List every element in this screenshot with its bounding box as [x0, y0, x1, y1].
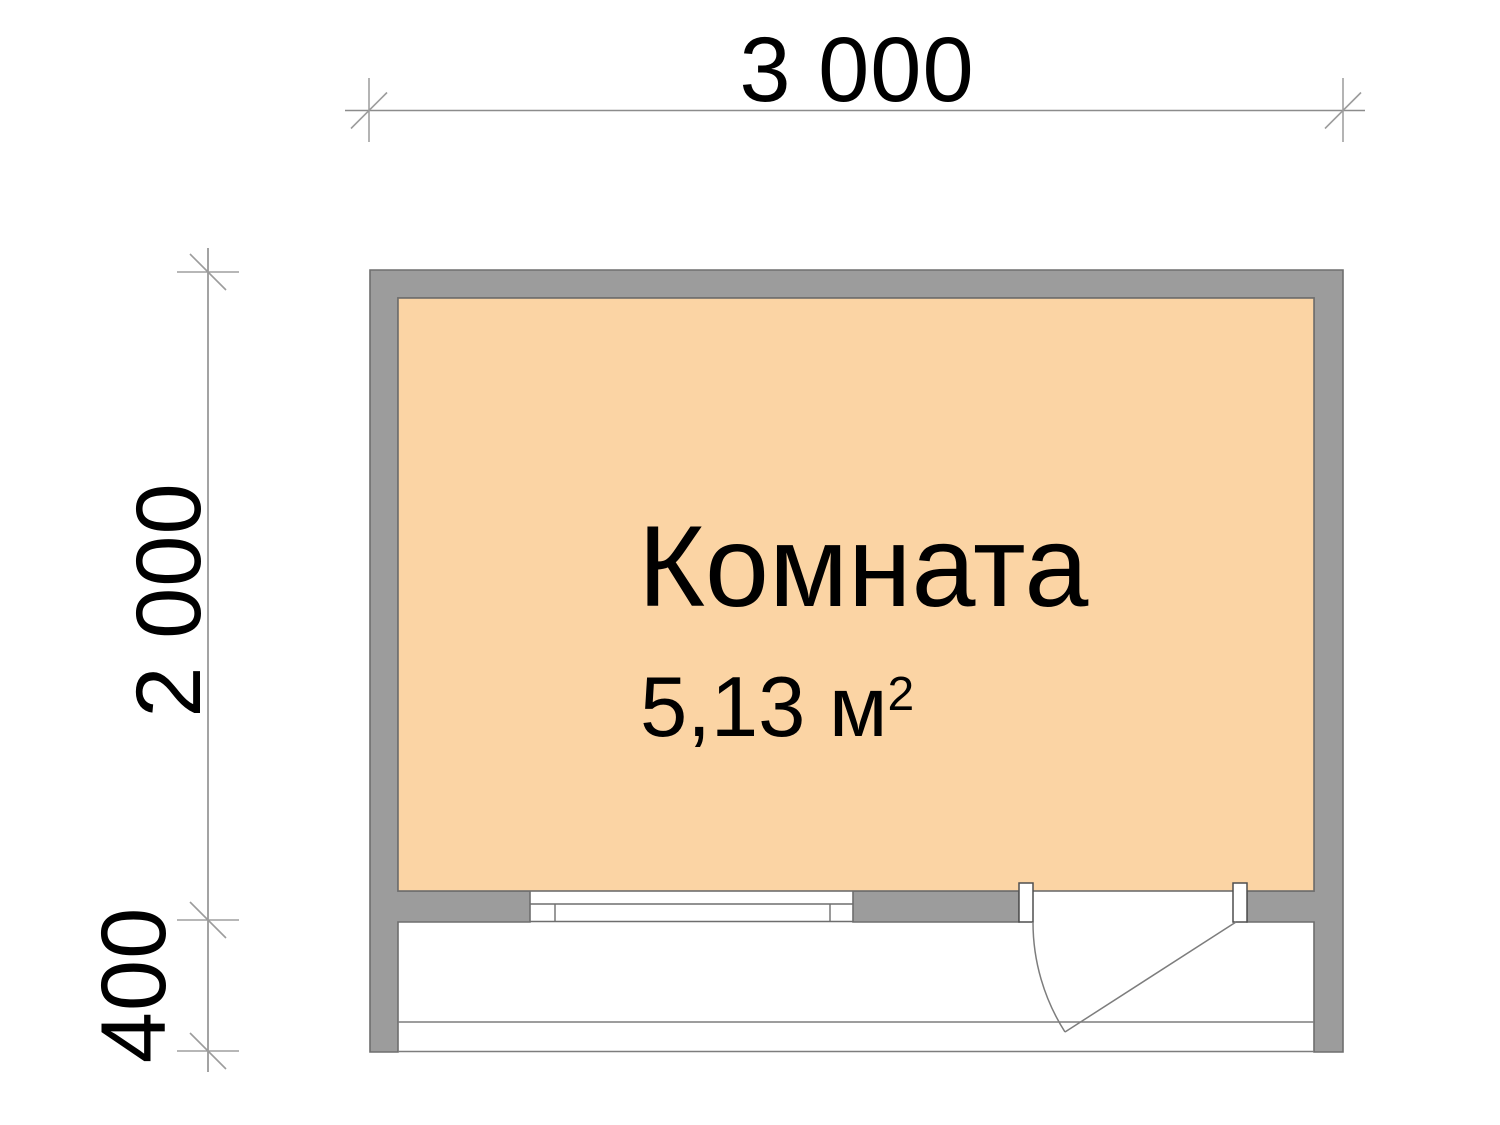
- window: [530, 904, 853, 922]
- floor-plan-canvas: 3 000 2 000 400 Комната 5,13 м2: [0, 0, 1500, 1125]
- door: [1019, 883, 1247, 1032]
- porch-dimension-label: 400: [88, 907, 180, 1064]
- door-leaf: [1065, 922, 1236, 1032]
- door-jamb-right: [1233, 883, 1247, 922]
- door-swing-arc: [1033, 922, 1065, 1032]
- door-jamb-left: [1019, 883, 1033, 922]
- room-name-label: Комната: [638, 510, 1088, 625]
- room-area-exponent: 2: [888, 668, 915, 721]
- room-area-label: 5,13 м2: [640, 665, 914, 750]
- porch: [398, 1022, 1314, 1052]
- left-dimension-label: 2 000: [123, 482, 215, 717]
- top-dimension-label: 3 000: [739, 24, 974, 116]
- room-area-value: 5,13 м: [640, 660, 888, 755]
